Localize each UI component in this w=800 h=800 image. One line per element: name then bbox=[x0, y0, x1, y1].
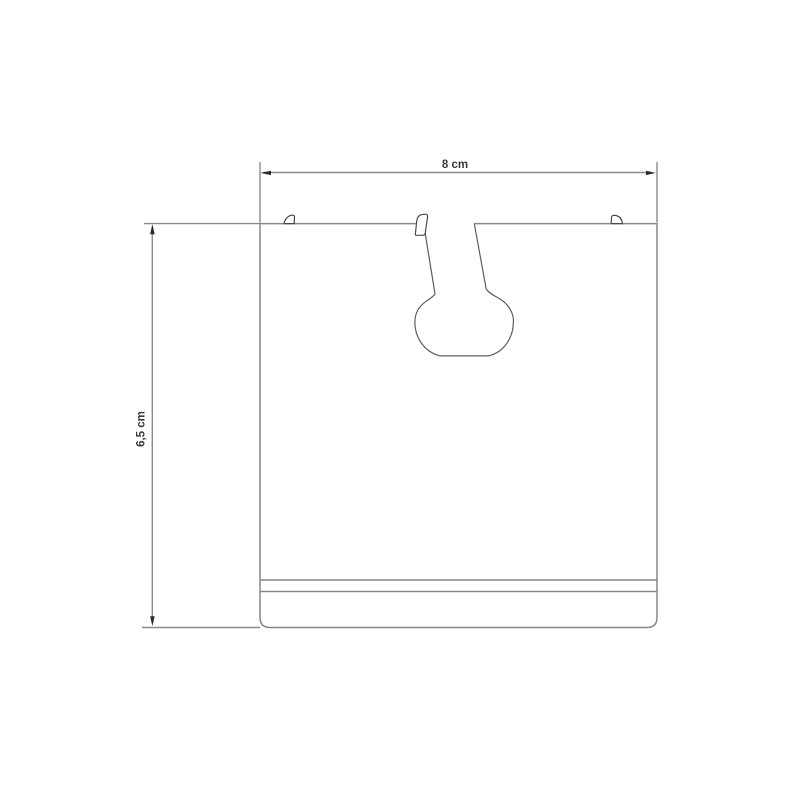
svg-text:6,5 cm: 6,5 cm bbox=[135, 411, 147, 447]
svg-text:8 cm: 8 cm bbox=[442, 159, 468, 171]
